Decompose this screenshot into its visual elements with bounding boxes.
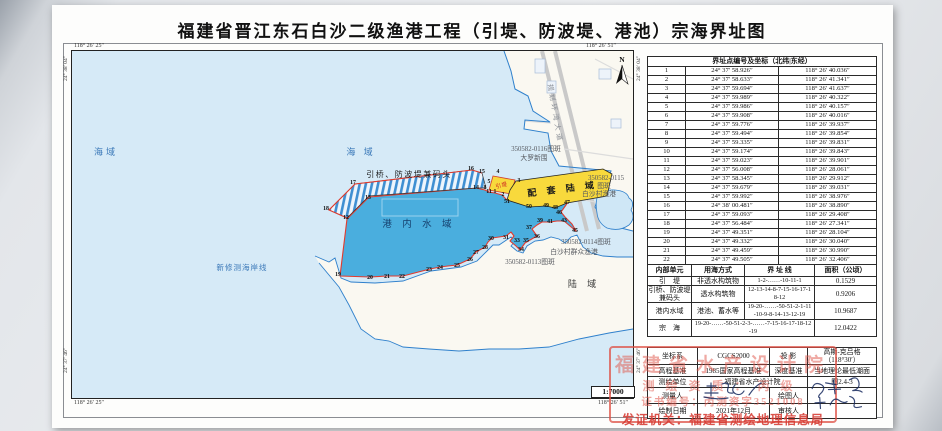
table-cell: 非透水构筑物 [692, 277, 745, 286]
point-id: 12 [648, 166, 686, 175]
map-label: 白沙村渔港 [582, 189, 616, 198]
boundary-point-number: 39 [537, 218, 543, 224]
area-header-area: 面积（公顷） [815, 265, 877, 277]
table-cell: 宗 海 [648, 320, 692, 337]
longitude-value: 118° 26′ 29.408″ [779, 211, 877, 220]
point-id: 16 [648, 202, 686, 211]
longitude-value: 118° 26′ 28.061″ [779, 166, 877, 175]
boundary-point-number: 33 [514, 238, 520, 244]
boundary-point-number: 28 [482, 245, 488, 251]
latitude-value: 24° 37′ 56.008″ [686, 166, 779, 175]
area-header-mode: 用海方式 [692, 265, 745, 277]
table-cell: 引桥、防波堤兼码头 [648, 286, 692, 303]
point-id: 19 [648, 229, 686, 238]
scale-bar: 1:7000 [591, 386, 635, 398]
boundary-point-number: 20 [367, 275, 373, 281]
area-row: 引 堤非透水构筑物1-2-……-10-11-10.1529 [648, 277, 877, 286]
point-id: 10 [648, 148, 686, 157]
longitude-value: 118° 26′ 39.901″ [779, 157, 877, 166]
meta-row: 坐标系CGCS2000投 影高斯-克吕格（118°30′） [648, 348, 877, 365]
map-metadata-table: 坐标系CGCS2000投 影高斯-克吕格（118°30′）高程基准1985国家高… [647, 347, 877, 419]
table-cell: 港内水域 [648, 303, 692, 320]
meta-row: 高程基准1985国家高程基准深度基准当地理论最低潮面 [648, 365, 877, 377]
table-cell: 福建省水产设计院 [698, 377, 808, 388]
point-id: 20 [648, 238, 686, 247]
boundary-point-number: 31 [503, 235, 509, 241]
point-id: 18 [648, 220, 686, 229]
latitude-value: 24° 38′ 00.481″ [686, 202, 779, 211]
map-frame: N 海域海 域新修测海岸线港 内 水 域陆 域引桥、防波堤兼码头配 套 陆 域引… [71, 50, 634, 399]
latitude-value: 24° 37′ 58.345″ [686, 175, 779, 184]
map-canvas: N 海域海 域新修测海岸线港 内 水 域陆 域引桥、防波堤兼码头配 套 陆 域引… [72, 51, 633, 398]
longitude-value: 118° 26′ 30.990″ [779, 247, 877, 256]
latitude-value: 24° 37′ 59.335″ [686, 139, 779, 148]
graticule-bottom-right: 118° 26′ 51″ [598, 400, 628, 406]
map-label: 大罗新围 [520, 153, 547, 162]
coord-row: 1124° 37′ 59.023″118° 26′ 39.901″ [648, 157, 877, 166]
table-cell: 审核人 [770, 404, 808, 419]
boundary-point-number: 2 [502, 192, 505, 198]
boundary-point-number: 23 [426, 267, 432, 273]
latitude-value: 24° 37′ 49.459″ [686, 247, 779, 256]
map-label: 港 内 水 域 [382, 218, 455, 230]
boundary-point-number: 22 [399, 274, 405, 280]
boundary-point-number: 35 [523, 238, 529, 244]
longitude-value: 118° 26′ 41.341″ [779, 76, 877, 85]
table-cell: 19-20-……-50-51-2-3-……-7-15-16-17-18-12-1… [692, 320, 815, 337]
coord-table-header: 界址点编号及坐标（北纬|东经） [648, 57, 877, 67]
table-cell: 当地理论最低潮面 [808, 365, 877, 377]
latitude-value: 24° 37′ 59.986″ [686, 103, 779, 112]
boundary-point-number: 5 [488, 179, 491, 185]
latitude-value: 24° 37′ 59.494″ [686, 130, 779, 139]
table-cell: 1-2-……-10-11-1 [745, 277, 815, 286]
boundary-point-number: 21 [384, 274, 390, 280]
point-id: 7 [648, 121, 686, 130]
graticule-left-bottom: 24° 37′ 46″ [63, 348, 69, 373]
boundary-point-number: 24 [437, 265, 443, 271]
boundary-point-number: 48 [552, 205, 558, 211]
longitude-value: 118° 26′ 39.831″ [779, 139, 877, 148]
coord-table-body: 124° 37′ 58.926″118° 26′ 40.036″224° 37′… [648, 67, 877, 274]
table-cell [808, 404, 877, 419]
table-cell: 坐标系 [648, 348, 698, 365]
point-id: 3 [648, 85, 686, 94]
latitude-value: 24° 37′ 49.332″ [686, 238, 779, 247]
table-cell: 港池、蓄水等 [692, 303, 745, 320]
boundary-point-number: 11 [486, 189, 492, 195]
graticule-left-top: 24° 38′ 04″ [63, 56, 69, 81]
point-id: 11 [648, 157, 686, 166]
graticule-top-right: 118° 26′ 51″ [586, 43, 616, 49]
map-label: 350582-0113图斑 [505, 257, 555, 266]
boundary-point-coordinate-table: 界址点编号及坐标（北纬|东经） 124° 37′ 58.926″118° 26′… [647, 56, 877, 284]
table-cell: 绘制日期 [648, 404, 698, 419]
coord-row: 924° 37′ 59.335″118° 26′ 39.831″ [648, 139, 877, 148]
coord-row: 2024° 37′ 49.332″118° 26′ 30.040″ [648, 238, 877, 247]
map-label: 引桥、防波堤兼码头 [366, 169, 452, 179]
meta-row: 绘制日期2021年12月审核人 [648, 404, 877, 419]
table-cell: 高程基准 [648, 365, 698, 377]
latitude-value: 24° 37′ 59.023″ [686, 157, 779, 166]
latitude-value: 24° 37′ 56.484″ [686, 220, 779, 229]
table-cell [808, 388, 877, 404]
boundary-point-number: 14 [473, 185, 479, 191]
coord-row: 124° 37′ 58.926″118° 26′ 40.036″ [648, 67, 877, 76]
latitude-value: 24° 37′ 58.633″ [686, 76, 779, 85]
point-id: 17 [648, 211, 686, 220]
map-label: 白沙村群众渔港 [550, 247, 598, 256]
boundary-point-number: 16 [468, 166, 474, 172]
latitude-value: 24° 37′ 58.926″ [686, 67, 779, 76]
coord-row: 1024° 37′ 59.174″118° 26′ 39.843″ [648, 148, 877, 157]
table-cell: 图2.4-3 [808, 377, 877, 388]
boundary-point-number: 12 [343, 215, 349, 221]
meta-row: 测量人绘图人 [648, 388, 877, 404]
map-label: 350582-0115 [588, 175, 625, 182]
point-id: 2 [648, 76, 686, 85]
longitude-value: 118° 26′ 39.937″ [779, 121, 877, 130]
table-cell: 引 堤 [648, 277, 692, 286]
point-id: 13 [648, 175, 686, 184]
longitude-value: 118° 26′ 39.031″ [779, 184, 877, 193]
area-row: 宗 海19-20-……-50-51-2-3-……-7-15-16-17-18-1… [648, 320, 877, 337]
area-row: 引桥、防波堤兼码头透水构筑物12-13-14-8-7-15-16-17-18-1… [648, 286, 877, 303]
meta-table-body: 坐标系CGCS2000投 影高斯-克吕格（118°30′）高程基准1985国家高… [648, 348, 877, 419]
area-row: 港内水域港池、蓄水等19-20-……-50-51-2-1-11-10-9-8-1… [648, 303, 877, 320]
area-header-unit: 内部单元 [648, 265, 692, 277]
table-cell: 测量人 [648, 388, 698, 404]
map-label: 海 域 [346, 146, 375, 157]
table-cell: 12-13-14-8-7-15-16-17-18-12 [745, 286, 815, 303]
boundary-point-number: 37 [526, 225, 532, 231]
point-id: 15 [648, 193, 686, 202]
table-cell: 投 影 [770, 348, 808, 365]
boundary-point-number: 43 [561, 218, 567, 224]
boundary-point-number: 3 [518, 178, 521, 184]
table-cell: 2021年12月 [698, 404, 770, 419]
point-id: 9 [648, 139, 686, 148]
point-id: 5 [648, 103, 686, 112]
table-cell: 19-20-……-50-51-2-1-11-10-9-8-14-13-12-19 [745, 303, 815, 320]
latitude-value: 24° 37′ 59.679″ [686, 184, 779, 193]
coord-row: 424° 37′ 59.989″118° 26′ 40.322″ [648, 94, 877, 103]
latitude-value: 24° 37′ 59.992″ [686, 193, 779, 202]
point-id: 21 [648, 247, 686, 256]
coord-row: 724° 37′ 59.776″118° 26′ 39.937″ [648, 121, 877, 130]
map-label: 陆 域 [568, 278, 600, 289]
graticule-right-bottom: 24° 37′ 46″ [636, 348, 642, 373]
coord-row: 624° 37′ 59.908″118° 26′ 40.016″ [648, 112, 877, 121]
boundary-point-number: 25 [454, 263, 460, 269]
coord-row: 1624° 38′ 00.481″118° 26′ 38.890″ [648, 202, 877, 211]
latitude-value: 24° 37′ 59.776″ [686, 121, 779, 130]
boundary-point-number: 30 [488, 236, 494, 242]
longitude-value: 118° 26′ 41.637″ [779, 85, 877, 94]
boundary-point-number: 4 [497, 169, 500, 175]
table-cell: CGCS2000 [698, 348, 770, 365]
boundary-point-number: 1 [494, 189, 497, 195]
longitude-value: 118° 26′ 39.843″ [779, 148, 877, 157]
table-cell: 0.9206 [815, 286, 877, 303]
boundary-point-number: 45 [572, 228, 578, 234]
boundary-point-number: 17 [350, 180, 356, 186]
coord-row: 224° 37′ 58.633″118° 26′ 41.341″ [648, 76, 877, 85]
boundary-point-number: 49 [543, 203, 549, 209]
longitude-value: 118° 26′ 40.036″ [779, 67, 877, 76]
latitude-value: 24° 37′ 59.694″ [686, 85, 779, 94]
latitude-value: 24° 37′ 59.174″ [686, 148, 779, 157]
point-id: 1 [648, 67, 686, 76]
north-label: N [619, 55, 625, 64]
meta-row: 测绘单位福建省水产设计院图2.4-3 [648, 377, 877, 388]
graticule-top-left: 118° 26′ 25″ [74, 43, 104, 49]
coord-row: 824° 37′ 59.494″118° 26′ 39.854″ [648, 130, 877, 139]
coord-row: 324° 37′ 59.694″118° 26′ 41.637″ [648, 85, 877, 94]
boundary-point-number: 13 [365, 195, 371, 201]
sea-use-area-table: 内部单元 用海方式 界 址 线 面积（公顷） 引 堤非透水构筑物1-2-……-1… [647, 264, 877, 337]
boundary-point-number: 27 [473, 250, 479, 256]
coord-row: 1724° 37′ 59.093″118° 26′ 29.408″ [648, 211, 877, 220]
boundary-point-number: 50 [526, 204, 532, 210]
table-cell: 深度基准 [770, 365, 808, 377]
table-cell: 12.0422 [815, 320, 877, 337]
coord-row: 1324° 37′ 58.345″118° 26′ 29.912″ [648, 175, 877, 184]
latitude-value: 24° 37′ 59.093″ [686, 211, 779, 220]
longitude-value: 118° 26′ 40.016″ [779, 112, 877, 121]
coord-row: 1224° 37′ 56.008″118° 26′ 28.061″ [648, 166, 877, 175]
table-cell: 透水构筑物 [692, 286, 745, 303]
point-id: 6 [648, 112, 686, 121]
longitude-value: 118° 26′ 40.157″ [779, 103, 877, 112]
boundary-point-number: 51 [504, 199, 510, 205]
longitude-value: 118° 26′ 38.976″ [779, 193, 877, 202]
table-cell: 绘图人 [770, 388, 808, 404]
longitude-value: 118° 26′ 38.890″ [779, 202, 877, 211]
boundary-point-number: 18 [323, 206, 329, 212]
coord-row: 1924° 37′ 49.351″118° 26′ 28.104″ [648, 229, 877, 238]
table-cell: 高斯-克吕格（118°30′） [808, 348, 877, 365]
longitude-value: 118° 26′ 40.322″ [779, 94, 877, 103]
table-cell: 1985国家高程基准 [698, 365, 770, 377]
coord-row: 1424° 37′ 59.679″118° 26′ 39.031″ [648, 184, 877, 193]
longitude-value: 118° 26′ 27.341″ [779, 220, 877, 229]
longitude-value: 118° 26′ 30.040″ [779, 238, 877, 247]
boundary-point-number: 34 [518, 247, 524, 253]
latitude-value: 24° 37′ 49.351″ [686, 229, 779, 238]
map-label: 新修测海岸线 [217, 262, 268, 272]
area-table-body: 引 堤非透水构筑物1-2-……-10-11-10.1529引桥、防波堤兼码头透水… [648, 277, 877, 337]
boundary-point-number: 15 [479, 169, 485, 175]
coord-row: 1824° 37′ 56.484″118° 26′ 27.341″ [648, 220, 877, 229]
graticule-bottom-left: 118° 26′ 25″ [74, 400, 104, 406]
area-header-line: 界 址 线 [745, 265, 815, 277]
table-cell: 0.1529 [815, 277, 877, 286]
graticule-right-top: 24° 38′ 04″ [636, 56, 642, 81]
latitude-value: 24° 37′ 59.989″ [686, 94, 779, 103]
boundary-point-number: 26 [467, 257, 473, 263]
boundary-point-number: 36 [534, 234, 540, 240]
point-id: 4 [648, 94, 686, 103]
map-label: 图斑 [597, 181, 611, 190]
table-cell: 10.9687 [815, 303, 877, 320]
longitude-value: 118° 26′ 28.104″ [779, 229, 877, 238]
longitude-value: 118° 26′ 29.912″ [779, 175, 877, 184]
latitude-value: 24° 37′ 59.908″ [686, 112, 779, 121]
coord-row: 1524° 37′ 59.992″118° 26′ 38.976″ [648, 193, 877, 202]
page-title: 福建省晋江东石白沙二级渔港工程（引堤、防波堤、港池）宗海界址图 [63, 17, 881, 42]
longitude-value: 118° 26′ 39.854″ [779, 130, 877, 139]
point-id: 14 [648, 184, 686, 193]
table-cell [698, 388, 770, 404]
point-id: 8 [648, 130, 686, 139]
table-cell: 测绘单位 [648, 377, 698, 388]
map-label: 海域 [94, 146, 118, 157]
boundary-point-number: 47 [564, 200, 570, 206]
map-label: 350582-0116图斑 [511, 144, 561, 153]
coord-row: 524° 37′ 59.986″118° 26′ 40.157″ [648, 103, 877, 112]
scanned-sheet-stage: 福建省晋江东石白沙二级渔港工程（引堤、防波堤、港池）宗海界址图 [0, 0, 942, 431]
coord-row: 2124° 37′ 49.459″118° 26′ 30.990″ [648, 247, 877, 256]
boundary-point-number: 41 [547, 219, 553, 225]
map-label: 350582-0114图斑 [561, 237, 611, 246]
boundary-point-number: 19 [335, 272, 341, 278]
